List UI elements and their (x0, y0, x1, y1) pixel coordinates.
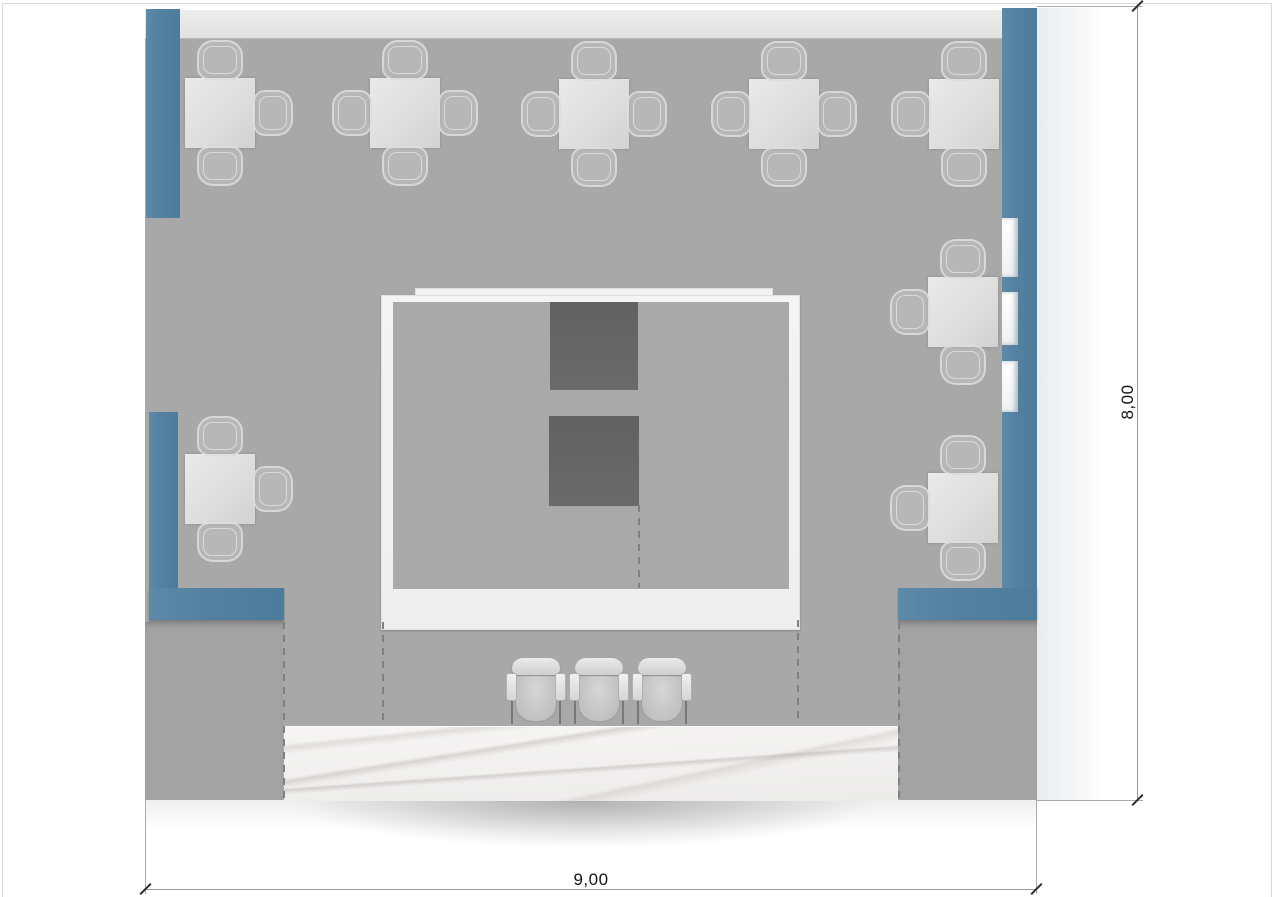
shelf-compartment (1002, 292, 1018, 345)
chair-bottom (571, 147, 617, 187)
room-shadow-bottom-soft (145, 800, 1037, 830)
chair-bottom (940, 345, 986, 385)
stool-armrest (555, 673, 566, 701)
dim-ext-top-right (1037, 6, 1143, 7)
chair-top (940, 435, 986, 475)
service-block-left (145, 622, 283, 800)
chair-bottom (940, 541, 986, 581)
stool-seat (515, 671, 557, 722)
dining-table (185, 78, 255, 148)
top-wall (145, 10, 1037, 39)
stool-armrest (569, 673, 580, 701)
dining-table (185, 454, 255, 524)
dining-table (749, 79, 819, 149)
bench-left-top (146, 9, 180, 218)
stool-armrest (681, 673, 692, 701)
marble-counter (284, 726, 898, 801)
dining-table (370, 78, 440, 148)
bar-stool (507, 658, 565, 724)
stool-seat (578, 671, 620, 722)
dining-set (559, 79, 629, 149)
dining-set (185, 78, 255, 148)
zone-dashed-line (382, 622, 384, 723)
island-equipment-unit-2 (549, 416, 639, 506)
kitchen-island (381, 295, 800, 630)
zone-dashed-line (797, 620, 799, 723)
chair-right (438, 90, 478, 136)
stool-armrest (618, 673, 629, 701)
dining-table (929, 79, 999, 149)
chair-top (761, 41, 807, 81)
dining-set (370, 78, 440, 148)
dining-table (928, 473, 998, 543)
dining-set (928, 473, 998, 543)
page-border-top (2, 3, 1271, 4)
dining-set (185, 454, 255, 524)
chair-right (627, 91, 667, 137)
chair-left (890, 485, 930, 531)
chair-left (711, 91, 751, 137)
dining-set (928, 277, 998, 347)
chair-right (253, 466, 293, 512)
island-equipment-unit-1 (550, 302, 638, 390)
stool-backrest (638, 658, 686, 675)
chair-bottom (197, 522, 243, 562)
room-shadow-right (1037, 8, 1107, 800)
zone-dashed-line (898, 622, 900, 800)
dim-ext-bottom-right2 (1036, 800, 1037, 894)
chair-left (521, 91, 561, 137)
chair-right (817, 91, 857, 137)
service-block-right (898, 622, 1037, 800)
chair-right (253, 90, 293, 136)
bar-stool (633, 658, 691, 724)
chair-top (941, 41, 987, 81)
chair-top (197, 416, 243, 456)
stool-backrest (512, 658, 560, 675)
dimension-label-height: 8,00 (1118, 372, 1138, 432)
shelf-compartment (1002, 218, 1018, 277)
shelf-compartment (1002, 361, 1018, 412)
chair-left (891, 91, 931, 137)
chair-top (382, 40, 428, 80)
chair-top (571, 41, 617, 81)
dining-set (929, 79, 999, 149)
stool-armrest (632, 673, 643, 701)
chair-bottom (382, 146, 428, 186)
stool-armrest (506, 673, 517, 701)
bench-right-horizontal (898, 588, 1037, 620)
dim-ext-bottom-left (145, 800, 146, 894)
stool-seat (641, 671, 683, 722)
chair-left (890, 289, 930, 335)
chair-top (940, 239, 986, 279)
zone-dashed-line (638, 505, 640, 588)
dining-table (559, 79, 629, 149)
bench-left-horizontal (149, 588, 284, 620)
stool-backrest (575, 658, 623, 675)
chair-bottom (197, 146, 243, 186)
dimension-label-width: 9,00 (561, 870, 621, 890)
page-border-right (1271, 3, 1272, 897)
zone-dashed-line (283, 622, 285, 800)
floor-plan-page: 8,00 9,00 (0, 0, 1286, 897)
floor-plan (145, 8, 1037, 800)
dining-set (749, 79, 819, 149)
chair-top (197, 40, 243, 80)
chair-left (332, 90, 372, 136)
dining-table (928, 277, 998, 347)
bar-stool (570, 658, 628, 724)
chair-bottom (761, 147, 807, 187)
dim-ext-bottom-right (1037, 800, 1143, 801)
chair-bottom (941, 147, 987, 187)
page-border-left (2, 3, 3, 897)
